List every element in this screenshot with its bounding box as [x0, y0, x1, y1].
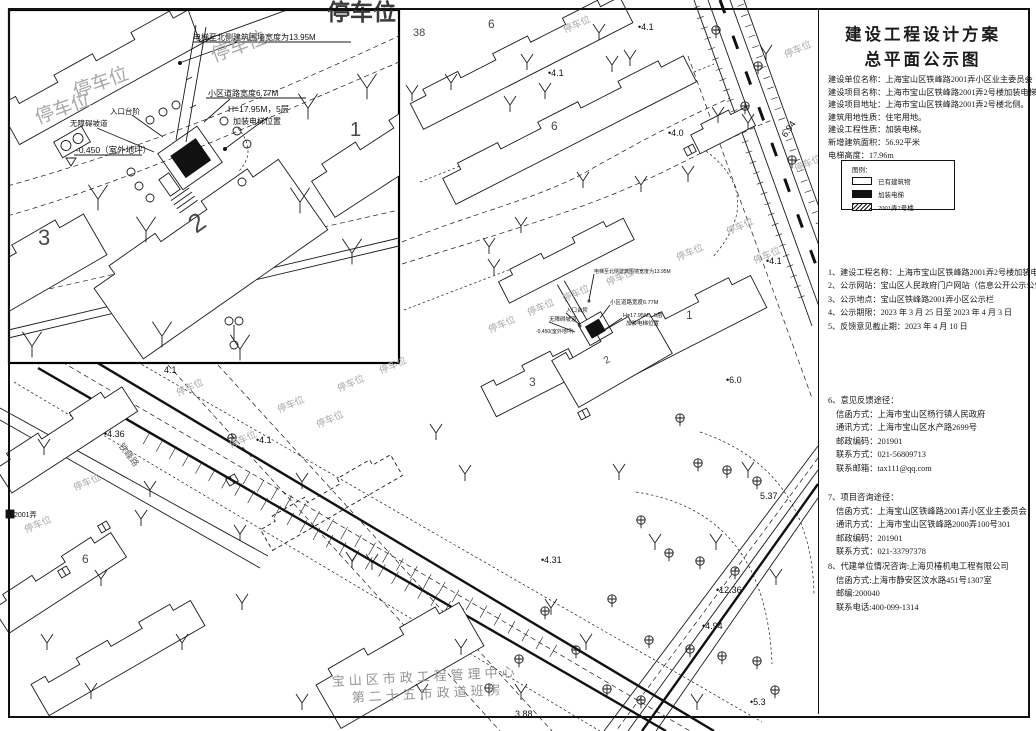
shrub-tree-icon — [236, 594, 248, 610]
shrub-tree-icon — [691, 694, 703, 710]
contact-section: 7、项目咨询途径：信函方式：上海宝山区铁峰路2001弄小区业主委员会通讯方式：上… — [828, 491, 1026, 559]
legend-row: 加装电梯 — [852, 189, 954, 199]
plan-label: -0.450(室外地坪) — [536, 328, 574, 335]
public-notices: 1、建设工程名称：上海市宝山区铁峰路2001弄2号楼加装电梯项目2、公示网站：宝… — [828, 266, 1026, 333]
plan-label: 停车位 — [314, 408, 345, 431]
project-info-line: 建设项目名称：上海市宝山区铁峰路2001弄2号楼加装电梯项目。 — [828, 87, 1024, 100]
plan-label: 入口台阶 — [110, 106, 140, 116]
shrub-tree-icon — [515, 217, 527, 233]
sheet-title-line2: 总平面公示图 — [819, 47, 1027, 72]
legend-row: 已有建筑物 — [852, 176, 954, 186]
round-tree-icon — [645, 636, 653, 648]
hatch-swatch-icon — [852, 203, 872, 211]
round-tree-icon — [665, 549, 673, 561]
round-tree-icon — [686, 645, 694, 657]
plan-label: 6 — [551, 119, 558, 133]
project-info-line: 建筑用地性质：住宅用地。 — [828, 112, 1024, 125]
section-title: 6、意见反馈途径： — [828, 394, 1026, 408]
round-tree-icon — [712, 26, 720, 38]
section-line: 邮编:200040 — [828, 587, 1026, 601]
plan-label: 停车位 — [525, 296, 556, 319]
plan-label: 停车位 — [275, 393, 306, 416]
plan-label: 3 — [529, 375, 536, 389]
plan-label: 停车位 — [724, 215, 755, 238]
sheet-title: 建设工程设计方案 总平面公示图 — [819, 22, 1027, 72]
plan-label: 无障碍坡道 — [70, 118, 108, 128]
round-tree-icon — [637, 696, 645, 708]
plan-label: •4.0 — [668, 128, 684, 138]
plan-label: 停车位 — [327, 0, 396, 25]
plan-label: •6.0 — [726, 375, 742, 385]
plan-label: 6 — [82, 552, 89, 566]
plan-label: •4.1 — [548, 68, 564, 78]
project-info: 建设单位名称：上海宝山区铁峰路2001弄小区业主委员会建设项目名称：上海市宝山区… — [828, 74, 1024, 162]
shrub-tree-icon — [483, 238, 495, 254]
plan-label: 电梯至北侧建筑围墙宽度为13.95M — [594, 268, 671, 275]
plan-label: 停车位 — [174, 376, 205, 399]
section-line: 信函方式：上海宝山区铁峰路2001弄小区业主委员会 — [828, 505, 1026, 519]
section-line: 通讯方式：上海市宝山区铁峰路2000弄100号301 — [828, 518, 1026, 532]
plan-label: 停车位 — [674, 241, 705, 264]
plan-label: 停车位 — [71, 471, 102, 494]
shrub-tree-icon — [488, 259, 500, 275]
shrub-tree-icon — [430, 424, 442, 440]
plan-label: 6.94 — [779, 119, 797, 139]
project-info-line: 建设项目地址：上海市宝山区铁峰路2001弄2号楼北侧。 — [828, 99, 1024, 112]
shrub-tree-icon — [459, 465, 471, 481]
shrub-tree-icon — [41, 634, 53, 650]
plan-label: 小区道路宽度6.77M — [610, 298, 659, 306]
plan-label: 5.37 — [760, 491, 778, 501]
shrub-tree-icon — [606, 56, 618, 72]
shrub-tree-icon — [296, 694, 308, 710]
shrub-tree-icon — [539, 83, 551, 99]
drawing-sheet: 停车位停车位停车位停车位停车位停车位停车位停车位停车位停车位停车位停车位停车位停… — [0, 0, 1036, 731]
building-outline — [0, 527, 127, 633]
plan-label: 铁峰路 — [116, 440, 141, 468]
contact-section: 8、代建单位情况咨询:上海贝椿机电工程有限公司信函方式:上海市静安区汶水路451… — [828, 560, 1026, 614]
plan-label: 38 — [413, 27, 425, 39]
building-outline — [258, 450, 403, 551]
plan-label: 6 — [488, 17, 495, 31]
section-line: 联系方式：021-33797378 — [828, 545, 1026, 559]
section-title: 7、项目咨询途径： — [828, 491, 1026, 505]
plan-label: •4.94 — [702, 621, 723, 631]
plan-label: H=17.95M，5层 — [623, 312, 663, 319]
shrub-tree-icon — [770, 569, 782, 585]
shrub-tree-icon — [613, 464, 625, 480]
round-tree-icon — [771, 686, 779, 698]
round-tree-icon — [637, 516, 645, 528]
shrub-tree-icon — [742, 462, 754, 478]
notice-line: 1、建设工程名称：上海市宝山区铁峰路2001弄2号楼加装电梯项目 — [828, 266, 1026, 279]
round-tree-icon — [694, 459, 702, 471]
round-tree-icon — [541, 607, 549, 619]
legend-items: 已有建筑物加装电梯2001弄2号楼 — [852, 176, 954, 212]
plan-label: 无障碍坡道 — [549, 315, 577, 323]
project-info-line: 建设单位名称：上海宝山区铁峰路2001弄小区业主委员会 — [828, 74, 1024, 87]
section-line: 通讯方式：上海市宝山区水产路2699号 — [828, 421, 1026, 435]
round-tree-icon — [718, 652, 726, 664]
legend-row: 2001弄2号楼 — [852, 202, 954, 212]
notice-line: 3、公示地点：宝山区铁峰路2001弄小区公示栏 — [828, 293, 1026, 306]
round-tree-icon — [572, 646, 580, 658]
plan-label: 3.88 — [515, 709, 533, 719]
plan-label: •4.1 — [638, 22, 654, 32]
legend-label: 加装电梯 — [878, 189, 904, 199]
section-line: 信函方式:上海市静安区汶水路451号1307室 — [828, 574, 1026, 588]
section-line: 邮政编码：201901 — [828, 532, 1026, 546]
plan-label: 1 — [350, 119, 361, 141]
legend-title: 图例： — [852, 164, 954, 174]
building-outline — [496, 213, 634, 303]
project-info-line: 新增建筑面积：56.92平米 — [828, 137, 1024, 150]
shrub-tree-icon — [504, 96, 516, 112]
existing-swatch-icon — [852, 177, 872, 185]
shrub-tree-icon — [649, 534, 661, 550]
plan-label: •4.36 — [104, 429, 125, 439]
plan-label: 2001弄 — [14, 511, 37, 519]
plan-label: •4.31 — [541, 555, 562, 565]
sheet-title-line1: 建设工程设计方案 — [819, 22, 1027, 47]
shrub-tree-icon — [682, 166, 694, 182]
round-tree-icon — [731, 567, 739, 579]
shrub-tree-icon — [760, 45, 772, 61]
plan-label: 3 — [38, 225, 50, 250]
round-tree-icon — [676, 414, 684, 426]
legend-box: 图例： 已有建筑物加装电梯2001弄2号楼 — [841, 160, 955, 210]
notice-line: 4、公示期限：2023 年 3 月 25 日至 2023 年 4 月 3 日 — [828, 306, 1026, 319]
tick-row — [143, 432, 464, 621]
plan-label: 1 — [686, 308, 693, 322]
building-outline — [31, 594, 205, 715]
section-line: 联系邮箱：tax111@qq.com — [828, 462, 1026, 476]
round-tree-icon — [696, 557, 704, 569]
round-tree-icon — [723, 466, 731, 478]
building-outline — [312, 596, 484, 729]
legend-label: 2001弄2号楼 — [878, 202, 914, 212]
shrub-tree-icon — [624, 50, 636, 66]
plan-label: •4.1 — [766, 256, 782, 266]
shrub-tree-icon — [135, 510, 147, 526]
shrub-tree-icon — [580, 634, 592, 650]
section-title: 8、代建单位情况咨询:上海贝椿机电工程有限公司 — [828, 560, 1026, 574]
plan-label: 停车位 — [335, 372, 366, 395]
plan-label: 加装电梯位置 — [233, 116, 281, 126]
round-tree-icon — [753, 477, 761, 489]
section-line: 联系电话:400-099-1314 — [828, 601, 1026, 615]
plan-label: 加装电梯位置 — [626, 319, 660, 327]
legend-label: 已有建筑物 — [878, 176, 911, 186]
plan-label: •12.36 — [716, 585, 742, 595]
section-line: 信函方式：上海市宝山区杨行镇人民政府 — [828, 408, 1026, 422]
plan-label: 停车位 — [782, 38, 813, 61]
plan-label: -0.450（室外地坪） — [76, 145, 151, 155]
contact-section: 6、意见反馈途径：信函方式：上海市宝山区杨行镇人民政府通讯方式：上海市宝山区水产… — [828, 394, 1026, 476]
shrub-tree-icon — [577, 172, 589, 188]
plan-label: 入口台阶 — [566, 306, 589, 314]
round-tree-icon — [753, 657, 761, 669]
elevator-swatch-icon — [852, 190, 872, 198]
project-info-line: 建设工程性质：加装电梯。 — [828, 124, 1024, 137]
plan-label: •5.3 — [750, 697, 766, 707]
shrub-tree-icon — [346, 552, 358, 568]
plan-label: 小区道路宽度6.77M — [208, 88, 279, 98]
shrub-tree-icon — [710, 534, 722, 550]
info-panel: 建设工程设计方案 总平面公示图 建设单位名称：上海宝山区铁峰路2001弄小区业主… — [818, 8, 1027, 714]
section-line: 邮政编码：201901 — [828, 435, 1026, 449]
plan-label: 电梯至北侧建筑围墙宽度为13.95M — [193, 32, 316, 42]
notice-line: 5、反馈意见截止期：2023 年 4 月 10 日 — [828, 320, 1026, 333]
plan-label: 停车位 — [486, 313, 517, 336]
section-line: 联系方式：021-56809713 — [828, 448, 1026, 462]
shrub-tree-icon — [406, 85, 418, 101]
plan-label: •4.1 — [256, 435, 272, 445]
plan-label: H=17.95M，5层 — [228, 104, 289, 114]
plan-label: 4.1 — [164, 365, 177, 375]
round-tree-icon — [608, 595, 616, 607]
notice-line: 2、公示网站：宝山区人民政府门户网站（信息公开公示公告栏目） — [828, 279, 1026, 292]
